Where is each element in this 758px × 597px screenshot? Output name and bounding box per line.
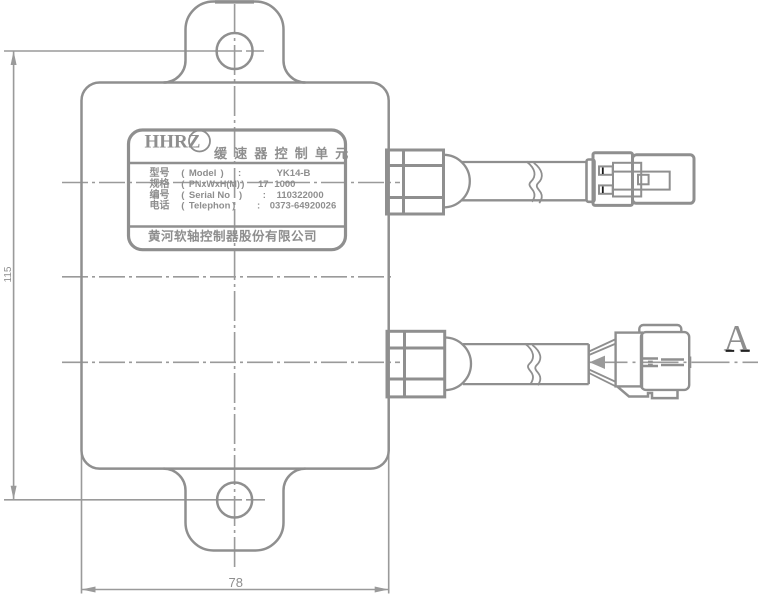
svg-text:编号(Serial No):110322000: 编号(Serial No):110322000 bbox=[150, 188, 324, 201]
svg-text:规格(PNxWxH(M))171000: 规格(PNxWxH(M))171000 bbox=[150, 177, 296, 190]
svg-text:78: 78 bbox=[229, 575, 243, 590]
svg-text:A: A bbox=[724, 319, 751, 360]
svg-text:型号(Model):YK14-B: 型号(Model):YK14-B bbox=[150, 166, 311, 179]
svg-text:电话(Telephon):0373-64920026: 电话(Telephon):0373-64920026 bbox=[150, 199, 337, 212]
svg-text:黄河软轴控制器股份有限公司: 黄河软轴控制器股份有限公司 bbox=[148, 229, 317, 244]
svg-text:缓速器控制单元: 缓速器控制单元 bbox=[214, 146, 355, 161]
svg-text:115: 115 bbox=[3, 266, 14, 282]
